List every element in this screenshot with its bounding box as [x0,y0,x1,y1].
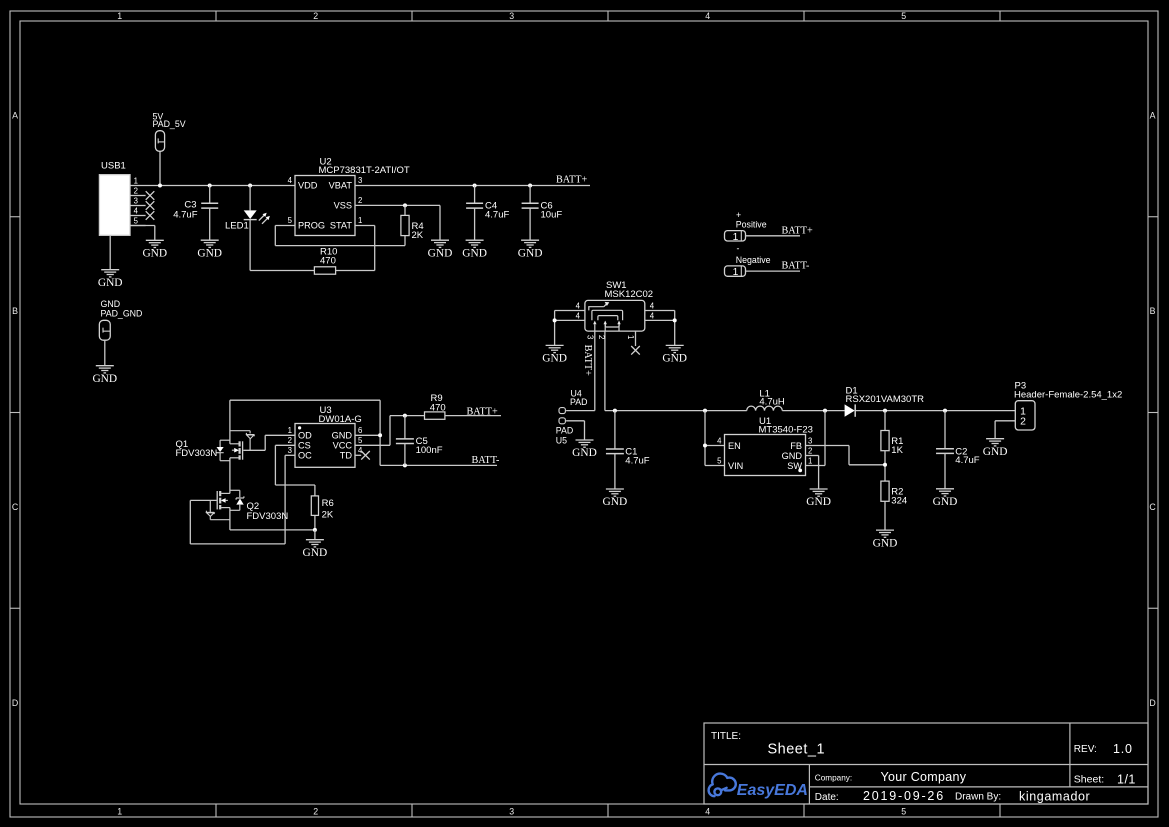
svg-text:4: 4 [650,312,655,321]
svg-text:2: 2 [288,436,292,445]
svg-text:GND: GND [983,446,1008,458]
svg-text:Sheet_1: Sheet_1 [768,741,826,757]
svg-text:Header-Female-2.54_1x2: Header-Female-2.54_1x2 [1014,390,1122,401]
svg-text:LED1: LED1 [225,220,249,231]
svg-text:1: 1 [288,426,292,435]
svg-text:D: D [12,698,18,708]
svg-text:BATT+: BATT+ [782,225,813,236]
svg-text:kingamador: kingamador [1019,790,1090,804]
svg-text:B: B [12,306,18,316]
svg-text:Negative: Negative [736,255,771,265]
svg-text:FB: FB [790,441,802,451]
svg-text:PAD_5V: PAD_5V [153,119,186,129]
svg-text:A: A [1150,110,1156,120]
svg-text:OC: OC [298,451,312,461]
svg-text:GND: GND [332,431,353,441]
svg-text:OD: OD [298,431,312,441]
svg-text:GND: GND [933,496,958,508]
svg-text:4.7uF: 4.7uF [173,210,197,221]
svg-text:Date:: Date: [815,792,839,803]
svg-text:4: 4 [288,176,293,185]
svg-text:MT3540-F23: MT3540-F23 [759,424,813,435]
svg-text:GND: GND [603,496,628,508]
svg-text:1.0: 1.0 [1113,742,1133,756]
svg-text:TITLE:: TITLE: [711,731,741,742]
svg-text:1: 1 [626,335,635,339]
svg-text:2: 2 [358,196,362,205]
svg-text:EN: EN [728,441,741,451]
svg-text:STAT: STAT [330,221,353,231]
svg-text:5: 5 [717,456,722,465]
svg-text:FDV303N: FDV303N [247,511,289,522]
svg-text:1K: 1K [891,445,903,456]
svg-text:B: B [1150,306,1156,316]
svg-text:3: 3 [585,335,594,339]
svg-text:4: 4 [358,446,363,455]
svg-text:C: C [1149,502,1156,512]
svg-text:Your Company: Your Company [881,770,967,784]
svg-text:5: 5 [288,216,293,225]
svg-text:4: 4 [134,207,139,216]
svg-text:U5: U5 [556,436,567,446]
svg-text:470: 470 [430,402,446,413]
svg-text:GND: GND [518,247,543,259]
svg-text:PAD_GND: PAD_GND [101,309,143,319]
svg-text:2K: 2K [412,230,424,241]
svg-text:1: 1 [117,11,122,21]
svg-text:2: 2 [134,187,138,196]
svg-text:BATT-: BATT- [782,260,811,271]
svg-text:1: 1 [134,177,138,186]
svg-text:1: 1 [358,216,362,225]
svg-text:100nF: 100nF [416,445,443,456]
svg-text:C: C [12,502,19,512]
svg-text:3: 3 [288,446,292,455]
svg-text:GND: GND [462,247,487,259]
svg-text:PAD: PAD [556,426,573,436]
svg-text:Positive: Positive [736,220,767,230]
svg-text:D: D [1149,698,1155,708]
svg-text:2: 2 [808,446,812,455]
svg-text:4: 4 [576,302,581,311]
svg-text:R6: R6 [322,498,334,509]
svg-text:4.7uH: 4.7uH [759,397,784,408]
svg-text:1/1: 1/1 [1117,772,1136,786]
svg-text:CS: CS [298,441,311,451]
svg-text:BATT+: BATT+ [467,406,498,417]
svg-text:3: 3 [134,197,138,206]
svg-text:2019-09-26: 2019-09-26 [863,789,945,803]
svg-text:GND: GND [873,537,898,549]
svg-text:GND: GND [542,353,567,365]
svg-text:FDV303N: FDV303N [176,448,218,459]
svg-text:10uF: 10uF [541,210,563,221]
svg-text:GND: GND [142,248,167,260]
svg-text:3: 3 [358,176,362,185]
svg-text:324: 324 [891,495,907,506]
svg-text:VBAT: VBAT [329,181,353,191]
svg-text:4.7uF: 4.7uF [485,210,509,221]
svg-text:MCP73831T-2ATI/OT: MCP73831T-2ATI/OT [319,165,410,176]
svg-text:3: 3 [509,807,514,817]
svg-text:4: 4 [576,312,581,321]
svg-text:Drawn By:: Drawn By: [955,792,1001,803]
svg-text:BATT+: BATT+ [556,175,587,186]
svg-text:470: 470 [320,256,336,267]
svg-text:VCC: VCC [333,441,353,451]
svg-text:2: 2 [597,335,606,339]
svg-text:GND: GND [303,547,328,559]
svg-text:4: 4 [705,11,710,21]
svg-text:USB1: USB1 [101,160,126,171]
svg-text:3: 3 [808,436,812,445]
svg-text:TD: TD [340,451,353,461]
svg-text:1: 1 [117,807,122,817]
svg-text:4.7uF: 4.7uF [625,455,649,466]
svg-text:A: A [12,110,18,120]
svg-text:6: 6 [358,426,362,435]
svg-text:1: 1 [733,232,739,243]
svg-text:3: 3 [509,11,514,21]
svg-text:Company:: Company: [815,773,852,782]
svg-text:GND: GND [806,496,831,508]
svg-text:4: 4 [717,436,722,445]
svg-text:2: 2 [313,11,318,21]
svg-text:1: 1 [808,456,812,465]
svg-text:PROG: PROG [298,221,325,231]
svg-text:VSS: VSS [334,201,352,211]
svg-text:2: 2 [313,807,318,817]
svg-text:VIN: VIN [728,461,743,471]
svg-text:REV:: REV: [1074,744,1097,755]
svg-text:GND: GND [428,247,453,259]
svg-text:-: - [737,244,740,254]
svg-text:GND: GND [782,451,803,461]
svg-text:Sheet:: Sheet: [1074,774,1104,786]
svg-text:RSX201VAM30TR: RSX201VAM30TR [846,394,925,405]
svg-text:1: 1 [733,267,739,278]
svg-text:2: 2 [1020,417,1026,428]
svg-text:DW01A-G: DW01A-G [319,414,362,425]
svg-text:BATT+: BATT+ [582,345,593,376]
svg-text:4: 4 [650,302,655,311]
svg-text:4.7uF: 4.7uF [955,455,979,466]
svg-text:VDD: VDD [298,181,318,191]
svg-text:BATT-: BATT- [472,455,501,466]
svg-text:PAD: PAD [570,397,587,407]
svg-text:2K: 2K [322,509,334,520]
svg-text:GND: GND [98,277,123,289]
svg-text:GND: GND [662,353,687,365]
svg-text:5: 5 [134,217,139,226]
svg-text:MSK12C02: MSK12C02 [605,289,654,300]
svg-text:5: 5 [901,11,906,21]
svg-text:GND: GND [92,373,117,385]
svg-text:EasyEDA: EasyEDA [737,782,808,799]
svg-text:GND: GND [197,247,222,259]
svg-text:5: 5 [901,807,906,817]
svg-text:5: 5 [358,436,363,445]
svg-text:GND: GND [572,447,597,459]
svg-text:4: 4 [705,807,710,817]
